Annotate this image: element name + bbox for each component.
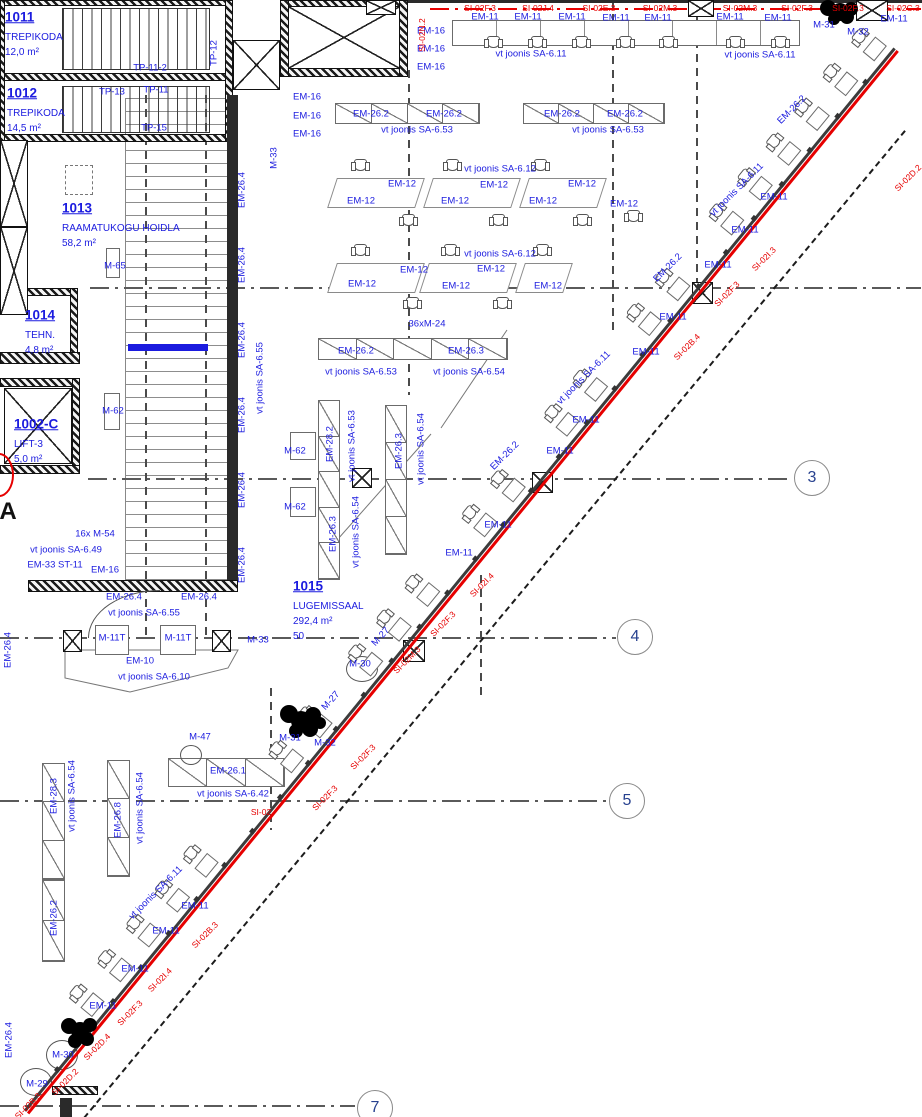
room-name: LIFT-3 bbox=[14, 440, 43, 450]
cabinet-cell bbox=[246, 759, 284, 786]
equipment-label: EM-11 bbox=[514, 12, 541, 22]
equipment-label: EM-26.4 bbox=[237, 472, 247, 508]
si-marking-label: SI-02M.3 bbox=[723, 4, 758, 13]
chair-icon bbox=[774, 36, 787, 48]
room-number: 1002-C bbox=[14, 417, 58, 431]
equipment-label: EM-26.4 bbox=[237, 547, 247, 583]
room-area: 5,0 m² bbox=[14, 455, 42, 465]
chair-icon bbox=[406, 297, 419, 309]
room-number: 1011 bbox=[5, 10, 34, 24]
equipment-label: EM-11 bbox=[659, 312, 686, 322]
equipment-label: vt joonis SA-6.53 bbox=[381, 125, 453, 135]
equipment-label: EM-11 bbox=[602, 13, 629, 23]
equipment-label: EM-12 bbox=[534, 281, 562, 291]
equipment-label: TP-11 bbox=[143, 85, 168, 95]
equipment-label: EM-16 bbox=[293, 92, 321, 102]
si-marking-label: SI-02J.4 bbox=[522, 4, 554, 13]
grid-bubble-4: 4 bbox=[617, 619, 653, 655]
equipment-label: vt joonis SA-6.53 bbox=[325, 367, 397, 377]
room-name: LUGEMISSAAL bbox=[293, 602, 364, 612]
equipment-label: vt joonis SA-6.54 bbox=[135, 772, 145, 844]
equipment-label: 36xM-24 bbox=[409, 319, 446, 329]
equipment-label: EM-12 bbox=[568, 179, 596, 189]
chair-icon bbox=[496, 297, 509, 309]
equipment-label: EM-11 bbox=[731, 225, 758, 235]
floor-plan-canvas: 3457TP-11-2TP-13TP-11TP-15TP-12M-33EM-16… bbox=[0, 0, 922, 1117]
equipment-label: EM-11 bbox=[760, 192, 787, 202]
equipment-label: EM-26.3 bbox=[328, 516, 338, 552]
equipment-label: EM-11 bbox=[716, 12, 743, 22]
equipment-label: M-31 bbox=[279, 733, 301, 743]
chair-icon bbox=[402, 214, 415, 226]
equipment-label: vt joonis SA-6.53 bbox=[572, 125, 644, 135]
si-marking-label: SI-02F.3 bbox=[781, 4, 813, 13]
equipment-label: EM-11 bbox=[558, 12, 585, 22]
column-or-shaft bbox=[366, 0, 396, 15]
room-name: TEHN. bbox=[25, 331, 55, 341]
equipment-label: vt joonis SA-6.54 bbox=[433, 367, 505, 377]
room-area: 58,2 m² bbox=[62, 239, 96, 249]
equipment-label: EM-28.3 bbox=[49, 778, 59, 814]
cabinet-cell bbox=[43, 841, 64, 879]
equipment-label: EM-12 bbox=[480, 180, 508, 190]
chair-icon bbox=[354, 159, 367, 171]
cabinet-cell bbox=[394, 339, 432, 359]
dashed-outline bbox=[65, 165, 93, 195]
si-marking-label: SI-02 bbox=[251, 808, 271, 817]
equipment-label: EM-26.2 bbox=[338, 346, 374, 356]
cabinet-strip bbox=[385, 405, 407, 555]
equipment-label: EM-26.4 bbox=[4, 1022, 14, 1058]
equipment-label: M-11T bbox=[165, 633, 192, 643]
cabinet-cell bbox=[108, 838, 129, 876]
cabinet-cell bbox=[386, 480, 406, 517]
room-name: TREPIKODA bbox=[7, 109, 65, 119]
equipment-label: M-29 bbox=[26, 1079, 48, 1089]
equipment-label: EM-16 bbox=[91, 565, 119, 575]
si-marking-label: SI-02F.3 bbox=[832, 4, 864, 13]
equipment-label: EM-11 bbox=[644, 13, 671, 23]
room-name: RAAMATUKOGU HOIDLA bbox=[62, 224, 180, 234]
equipment-label: M-11T bbox=[99, 633, 126, 643]
equipment-label: EM-11 bbox=[572, 415, 599, 425]
equipment-label: EM-12 bbox=[442, 281, 470, 291]
chair-icon bbox=[627, 210, 640, 222]
equipment-label: EM-33 ST-11 bbox=[27, 560, 82, 570]
revision-scribble bbox=[83, 1018, 97, 1032]
equipment-label: EM-11 bbox=[632, 347, 659, 357]
equipment-label: EM-26.1 bbox=[210, 766, 246, 776]
grid-letter: A bbox=[0, 500, 17, 524]
room-name: TREPIKODA bbox=[5, 33, 63, 43]
room-area: 12,0 m² bbox=[5, 48, 39, 58]
chair-icon bbox=[446, 159, 459, 171]
equipment-label: EM-26.2 bbox=[426, 109, 462, 119]
si-marking-label: SI-02M.3 bbox=[643, 4, 678, 13]
equipment-label: vt joonis SA-6.11 bbox=[724, 50, 795, 60]
equipment-label: EM-11 bbox=[880, 14, 907, 24]
equipment-label: EM-11 bbox=[445, 548, 472, 558]
equipment-label: EM-16 bbox=[293, 111, 321, 121]
equipment-label: vt joonis SA-6.12 bbox=[464, 164, 536, 174]
equipment-label: EM-12 bbox=[400, 265, 428, 275]
equipment-label: TP-11-2 bbox=[133, 63, 167, 73]
equipment-label: M-65 bbox=[104, 261, 126, 271]
equipment-label: vt joonis SA-6.54 bbox=[67, 760, 77, 832]
equipment-label: EM-26.4 bbox=[237, 322, 247, 358]
si-marking-label: SI-02N.2 bbox=[418, 18, 427, 52]
room-area: 14,5 m² bbox=[7, 124, 41, 134]
room-area: 292,4 m² bbox=[293, 617, 332, 627]
equipment-label: vt joonis SA-6.10 bbox=[118, 672, 190, 682]
equipment-label: EM-16 bbox=[293, 129, 321, 139]
grid-bubble-3: 3 bbox=[794, 460, 830, 496]
equipment-label: TP-15 bbox=[141, 123, 167, 133]
chair-icon bbox=[536, 244, 549, 256]
equipment-label: EM-10 bbox=[126, 656, 154, 666]
chair-icon bbox=[576, 214, 589, 226]
equipment-label: EM-11 bbox=[764, 13, 791, 23]
chair-icon bbox=[575, 36, 588, 48]
equipment-circle bbox=[180, 745, 202, 765]
equipment-label: M-33 bbox=[247, 635, 269, 645]
room-area: 4,8 m² bbox=[25, 346, 53, 356]
equipment-label: M-30 bbox=[52, 1050, 74, 1060]
cabinet-cell bbox=[108, 761, 129, 799]
chair-icon bbox=[492, 214, 505, 226]
equipment-label: EM-12 bbox=[388, 179, 416, 189]
equipment-label: EM-12 bbox=[610, 199, 638, 209]
equipment-label: EM-26.4 bbox=[237, 247, 247, 283]
grid-bubble-5: 5 bbox=[609, 783, 645, 819]
equipment-label: EM-11 bbox=[152, 926, 179, 936]
equipment-label: EM-26.2 bbox=[353, 109, 389, 119]
equipment-label: EM-26.4 bbox=[106, 592, 142, 602]
si-marking-label: SI-02C.3 bbox=[886, 4, 920, 13]
equipment-label: EM-11 bbox=[181, 901, 208, 911]
equipment-label: EM-26.3 bbox=[448, 346, 484, 356]
cabinet-cell bbox=[319, 472, 339, 508]
equipment-label: EM-26.4 bbox=[237, 172, 247, 208]
room-capacity: 50 bbox=[293, 632, 304, 642]
room-number: 1015 bbox=[293, 579, 323, 593]
equipment-label: 16x M-54 bbox=[75, 529, 115, 539]
chair-icon bbox=[662, 36, 675, 48]
equipment-label: EM-11 bbox=[121, 964, 148, 974]
equipment-label: vt joonis SA-6.55 bbox=[108, 608, 180, 618]
equipment-label: EM-12 bbox=[477, 264, 505, 274]
equipment-label: vt joonis SA-6.42 bbox=[197, 789, 269, 799]
equipment-label: EM-12 bbox=[441, 196, 469, 206]
chair-icon bbox=[354, 244, 367, 256]
column-or-shaft bbox=[288, 6, 400, 69]
room-number: 1012 bbox=[7, 86, 37, 100]
equipment-label: EM-16 bbox=[417, 62, 445, 72]
room-number: 1013 bbox=[62, 201, 92, 215]
equipment-label: vt joonis SA-6.12 bbox=[464, 249, 536, 259]
chair-icon bbox=[444, 244, 457, 256]
equipment-label: vt joonis SA-6.55 bbox=[255, 342, 265, 414]
equipment-label: TP-13 bbox=[99, 87, 125, 97]
chair-icon bbox=[619, 36, 632, 48]
equipment-label: EM-11 bbox=[546, 446, 573, 456]
equipment-label: EM-12 bbox=[529, 196, 557, 206]
column-or-shaft bbox=[212, 630, 231, 652]
equipment-label: vt joonis SA-6.49 bbox=[30, 545, 102, 555]
chair-icon bbox=[534, 159, 547, 171]
chair-icon bbox=[729, 36, 742, 48]
equipment-label: vt joonis SA-6.11 bbox=[495, 49, 566, 59]
column-or-shaft bbox=[0, 227, 28, 315]
column-or-shaft bbox=[688, 0, 714, 17]
equipment-label: EM-11 bbox=[484, 520, 511, 530]
equipment-label: M-47 bbox=[189, 732, 211, 742]
equipment-label: EM-12 bbox=[347, 196, 375, 206]
equipment-label: vt joonis SA-6.54 bbox=[416, 413, 426, 485]
equipment-label: EM-12 bbox=[348, 279, 376, 289]
equipment-label: EM-26.4 bbox=[181, 592, 217, 602]
equipment-label: EM-26.4 bbox=[237, 397, 247, 433]
equipment-label: EM-26.2 bbox=[544, 109, 580, 119]
equipment-label: EM-26.8 bbox=[113, 802, 123, 838]
equipment-label: vt joonis SA-6.54 bbox=[351, 496, 361, 568]
equipment-label: M-32 bbox=[314, 738, 336, 748]
si-marking-label: SI-02E.3 bbox=[582, 4, 615, 13]
chair-icon bbox=[487, 36, 500, 48]
equipment-label: EM-11 bbox=[89, 1001, 116, 1011]
column-or-shaft bbox=[0, 140, 28, 227]
equipment-label: EM-26.2 bbox=[607, 109, 643, 119]
equipment-label: M-62 bbox=[284, 502, 306, 512]
equipment-label: vt joonis SA-6.53 bbox=[347, 410, 357, 482]
equipment-label: M-30 bbox=[349, 659, 371, 669]
column-or-shaft bbox=[63, 630, 82, 652]
equipment-label: M-62 bbox=[284, 446, 306, 456]
column-or-shaft bbox=[233, 40, 280, 90]
equipment-label: EM-28.2 bbox=[325, 426, 335, 462]
equipment-label: TP-12 bbox=[209, 40, 219, 66]
si-marking-label: SI-02F.3 bbox=[464, 4, 496, 13]
equipment-label: EM-26.4 bbox=[3, 632, 13, 668]
room-number: 1014 bbox=[25, 308, 55, 322]
equipment-label: EM-26.3 bbox=[394, 433, 404, 469]
cabinet-cell bbox=[386, 517, 406, 554]
chair-icon bbox=[531, 36, 544, 48]
equipment-label: M-31 bbox=[813, 20, 835, 30]
equipment-label: EM-11 bbox=[704, 260, 731, 270]
revision-scribble bbox=[314, 717, 326, 729]
equipment-label: M-62 bbox=[102, 406, 124, 416]
equipment-label: M-33 bbox=[269, 147, 279, 169]
equipment-label: M-32 bbox=[847, 27, 869, 37]
equipment-label: EM-26.2 bbox=[49, 900, 59, 936]
equipment-label: EM-11 bbox=[471, 12, 498, 22]
